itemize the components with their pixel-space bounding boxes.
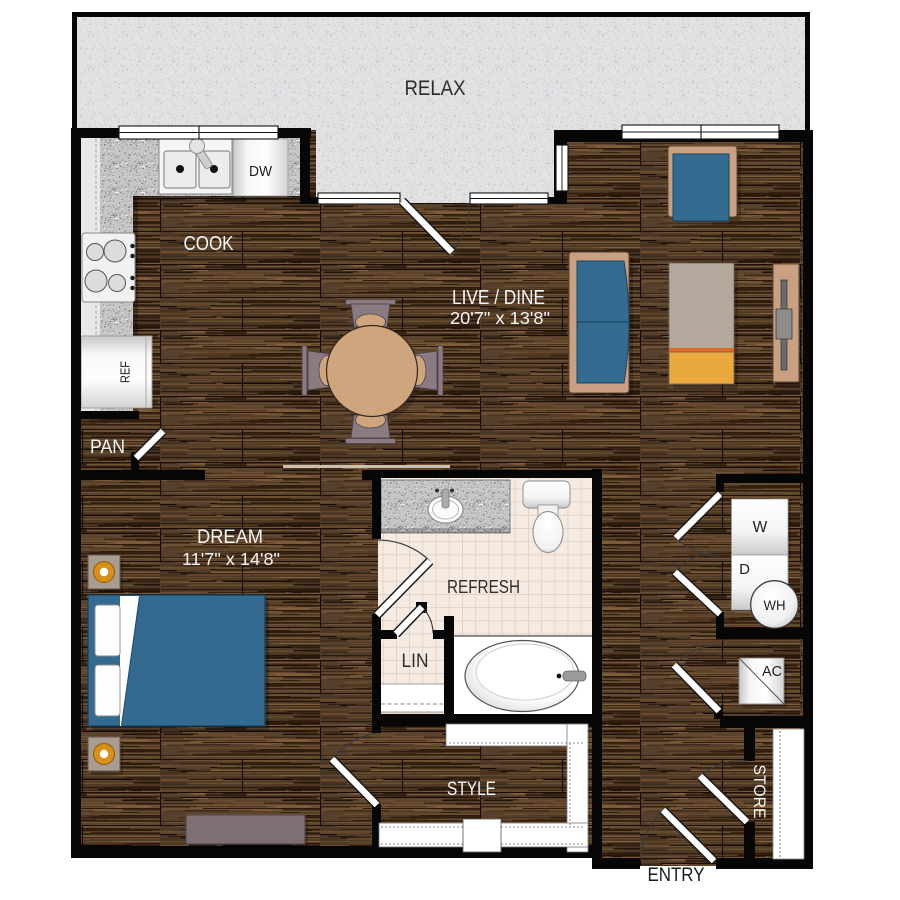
svg-text:WH: WH (764, 598, 786, 613)
svg-text:AC: AC (762, 664, 782, 680)
svg-text:STYLE: STYLE (447, 779, 496, 800)
svg-text:DREAM: DREAM (197, 526, 263, 548)
svg-text:11'7" x 14'8": 11'7" x 14'8" (182, 549, 280, 569)
svg-text:ENTRY: ENTRY (648, 865, 705, 886)
svg-text:RELAX: RELAX (405, 77, 466, 100)
svg-text:PAN: PAN (90, 436, 125, 458)
svg-text:LIVE / DINE: LIVE / DINE (452, 287, 545, 309)
svg-text:20'7" x 13'8": 20'7" x 13'8" (450, 308, 550, 328)
svg-text:LIN: LIN (402, 651, 429, 672)
svg-text:STORE: STORE (750, 765, 769, 819)
svg-text:REFRESH: REFRESH (447, 576, 520, 597)
svg-text:REF: REF (118, 361, 133, 383)
svg-text:W: W (753, 519, 768, 536)
svg-text:D: D (739, 561, 750, 578)
svg-text:COOK: COOK (184, 232, 234, 255)
svg-text:DW: DW (249, 164, 272, 180)
